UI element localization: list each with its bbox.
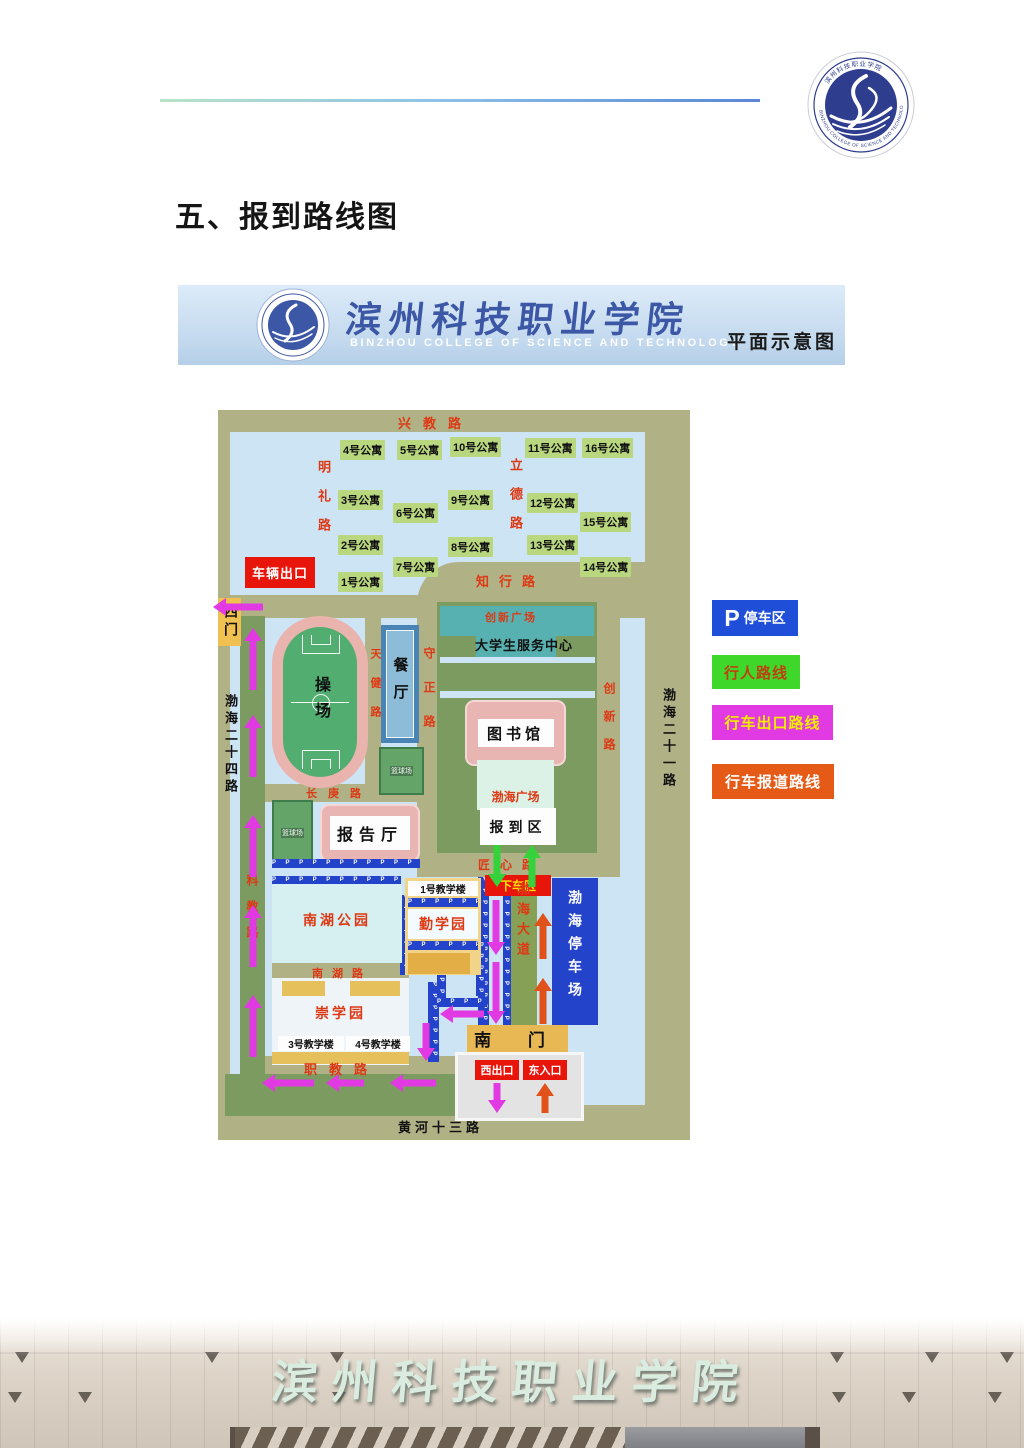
qinxueyuan-label: 勤学园 xyxy=(408,909,478,939)
basketball-court-east: 篮球场 xyxy=(379,747,424,795)
dorm-label: 1号公寓 xyxy=(338,572,383,592)
student-center-label: 大学生服务中心 xyxy=(460,635,588,654)
teaching-building-4-label: 4号教学楼 xyxy=(346,1036,410,1051)
route-arrow-left-icon xyxy=(390,1074,436,1091)
gate-stripe-pattern xyxy=(235,1427,625,1448)
document-page: 滨州科技职业学院 BINZHOU COLLEGE OF SCIENCE AND … xyxy=(0,0,1024,1448)
dorm-label: 2号公寓 xyxy=(338,535,383,555)
road-bohai24-label: 渤海二十四路 xyxy=(221,694,240,796)
parking-strip: P P P P P P P P P P P P P P P P xyxy=(272,859,420,868)
legend-item-vehicle-report-route: 行车报道路线 xyxy=(712,764,834,799)
basketball-court-label: 篮球场 xyxy=(281,828,304,838)
dorm-label: 4号公寓 xyxy=(340,440,385,460)
qinxueyuan-south-building xyxy=(408,953,470,974)
dorm-label: 8号公寓 xyxy=(448,537,493,557)
teaching-building-1-label: 1号教学楼 xyxy=(408,881,478,896)
legend-item-vehicle-exit-route: 行车出口路线 xyxy=(712,705,833,740)
route-arrow-up-icon xyxy=(244,995,262,1057)
road-xingjiao-label: 兴教路 xyxy=(398,413,473,432)
road-zhixing-label: 知行路 xyxy=(476,571,545,590)
college-emblem-logo: 滨州科技职业学院 BINZHOU COLLEGE OF SCIENCE AND … xyxy=(806,50,916,160)
legend-item-pedestrian-route: 行人路线 xyxy=(712,655,800,689)
vehicle-exit-label: 车辆出口 xyxy=(245,557,315,588)
road-tianjian-label: 天健路 xyxy=(367,648,383,735)
banner-college-name-cn: 滨州科技职业学院 xyxy=(343,291,692,343)
map-banner: 滨州科技职业学院 BINZHOU COLLEGE OF SCIENCE AND … xyxy=(178,285,845,365)
road-lide-label: 立德路 xyxy=(506,458,525,545)
route-arrow-left-icon xyxy=(440,1005,484,1022)
library-building: 图书馆 xyxy=(465,700,566,766)
route-arrow-up-icon xyxy=(244,628,262,690)
gate-glass-panel xyxy=(625,1427,805,1448)
photo-top-fade xyxy=(0,1318,1024,1356)
dorm-label: 13号公寓 xyxy=(527,535,578,555)
dorm-label: 14号公寓 xyxy=(580,557,631,577)
route-arrow-left-icon xyxy=(326,1074,364,1091)
lecture-hall-building: 报告厅 xyxy=(320,804,420,862)
campus-gate-photo: 滨州科技职业学院 xyxy=(0,1318,1024,1448)
dorm-label: 3号公寓 xyxy=(338,490,383,510)
route-arrow-down-icon xyxy=(487,900,505,955)
route-arrow-west-gate-icon xyxy=(213,598,263,615)
dorm-label: 6号公寓 xyxy=(393,503,438,523)
road-changgeng-label: 长庚路 xyxy=(306,785,372,801)
bohai-parking-label: 渤海停车场 xyxy=(565,890,585,1005)
parking-p-icon: P xyxy=(724,605,739,632)
library-label: 图书馆 xyxy=(478,719,554,747)
road-nanhu-label: 南湖路 xyxy=(312,965,372,981)
teaching-building-3-label: 3号教学楼 xyxy=(278,1036,344,1051)
dorm-label: 11号公寓 xyxy=(525,438,576,458)
road-chuangxin-label: 创新路 xyxy=(601,682,618,766)
road-bohai-avenue-label: 渤海大道 xyxy=(513,882,532,962)
header-divider xyxy=(160,99,760,102)
chongxueyuan-building-b xyxy=(350,981,400,996)
pedestrian-arrow-down-icon xyxy=(489,845,505,887)
parking-strip: P P P P P P P P P P P P P P P P xyxy=(408,941,478,950)
registration-area-label: 报到区 xyxy=(480,808,556,845)
dorm-label: 16号公寓 xyxy=(582,438,633,458)
route-arrow-down-icon xyxy=(488,1083,505,1113)
east-entrance-label: 东入口 xyxy=(523,1060,567,1080)
stadium-label: 操场 xyxy=(272,616,368,788)
block-gap-2 xyxy=(440,691,595,698)
banner-logo xyxy=(256,288,330,362)
south-gate: 南 门 xyxy=(467,1025,568,1052)
pedestrian-arrow-up-icon xyxy=(524,845,540,887)
report-arrow-up-icon xyxy=(534,978,552,1024)
west-exit-label: 西出口 xyxy=(475,1060,519,1080)
road-huanghe13-label: 黄河十三路 xyxy=(398,1117,483,1136)
gate-opening xyxy=(230,1427,820,1448)
dorm-label: 7号公寓 xyxy=(393,557,438,577)
report-arrow-up-icon xyxy=(536,1083,553,1113)
canteen-label: 餐厅 xyxy=(386,630,414,738)
canteen-building: 餐厅 xyxy=(381,625,419,743)
route-arrow-down-icon xyxy=(487,962,505,1024)
parking-strip: P P P P P P P P P P P P P P P P xyxy=(408,898,478,907)
report-arrow-up-icon xyxy=(534,913,552,959)
dorm-label: 9号公寓 xyxy=(448,490,493,510)
route-arrow-down-icon xyxy=(417,1023,434,1061)
dorm-label: 12号公寓 xyxy=(527,493,578,513)
road-bohai21-label: 渤海二十一路 xyxy=(659,688,678,790)
campus-map: 创新广场 大学生服务中心 图书馆 渤海广场 报到区 操场 餐厅 篮球场 xyxy=(218,410,690,1140)
dorm-label: 10号公寓 xyxy=(450,437,501,457)
road-shouzheng-label: 守正路 xyxy=(421,647,438,749)
banner-college-name-en: BINZHOU COLLEGE OF SCIENCE AND TECHNOLOG… xyxy=(350,337,740,349)
legend-label: 停车区 xyxy=(744,608,786,628)
page-title: 五、报到路线图 xyxy=(175,192,399,236)
route-arrow-up-icon xyxy=(244,715,262,777)
innovation-plaza-label: 创新广场 xyxy=(468,609,554,625)
lecture-hall-label: 报告厅 xyxy=(330,816,410,850)
basketball-court-west: 篮球场 xyxy=(272,800,313,865)
dorm-label: 5号公寓 xyxy=(397,440,442,460)
road-mingli-label: 明礼路 xyxy=(314,460,333,547)
dorm-label: 15号公寓 xyxy=(580,512,631,532)
basketball-court-label: 篮球场 xyxy=(390,766,413,776)
block-gap-1 xyxy=(440,657,595,663)
map-legend: P 停车区 行人路线 行车出口路线 行车报道路线 xyxy=(712,600,852,810)
route-arrow-up-icon xyxy=(244,815,262,877)
bohai-parking-lot: 渤海停车场 xyxy=(552,878,598,1025)
chongxueyuan-label: 崇学园 xyxy=(272,1003,409,1023)
chongxueyuan-building-a xyxy=(282,981,325,996)
bohai-plaza-label: 渤海广场 xyxy=(477,788,554,805)
legend-item-parking: P 停车区 xyxy=(712,600,798,636)
route-arrow-left-icon xyxy=(262,1074,314,1091)
nanhu-park-label: 南湖公园 xyxy=(272,910,402,930)
stadium: 操场 xyxy=(272,616,368,788)
route-arrow-up-icon xyxy=(244,905,262,967)
banner-caption: 平面示意图 xyxy=(727,327,837,354)
